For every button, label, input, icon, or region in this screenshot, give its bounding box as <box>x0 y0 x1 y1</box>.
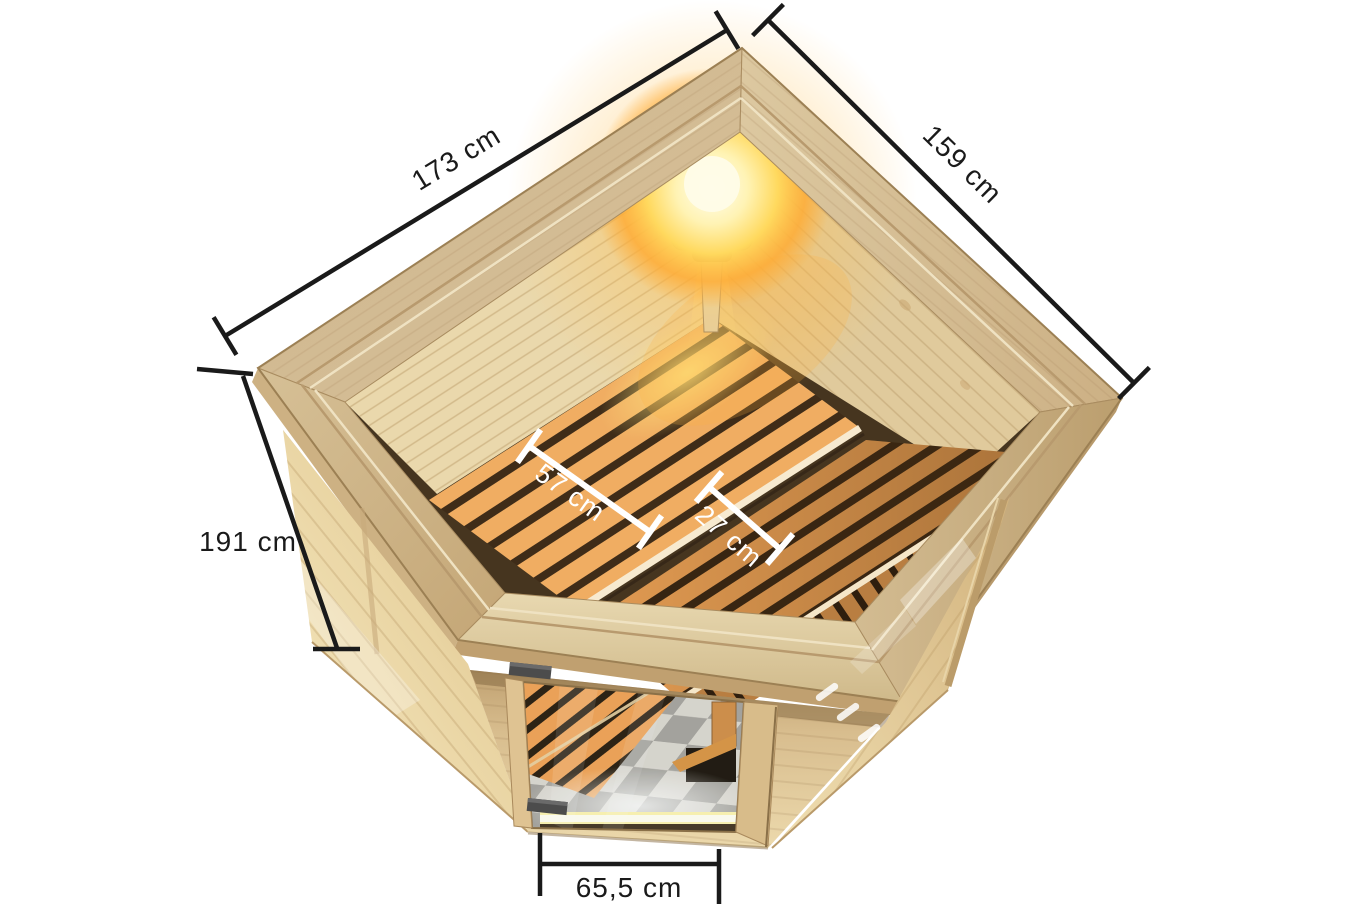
dim-label-height: 191 cm <box>199 526 297 557</box>
dim-label-back-right: 159 cm <box>917 119 1009 210</box>
dim-label-door-width: 65,5 cm <box>576 872 683 903</box>
sauna-dimension-diagram: 173 cm 159 cm 191 cm 57 cm 27 cm 65,5 cm <box>0 0 1359 904</box>
glass-door <box>515 675 758 846</box>
dim-label-back-left: 173 cm <box>406 119 506 196</box>
sauna-illustration: 173 cm 159 cm 191 cm 57 cm 27 cm 65,5 cm <box>0 0 1359 904</box>
